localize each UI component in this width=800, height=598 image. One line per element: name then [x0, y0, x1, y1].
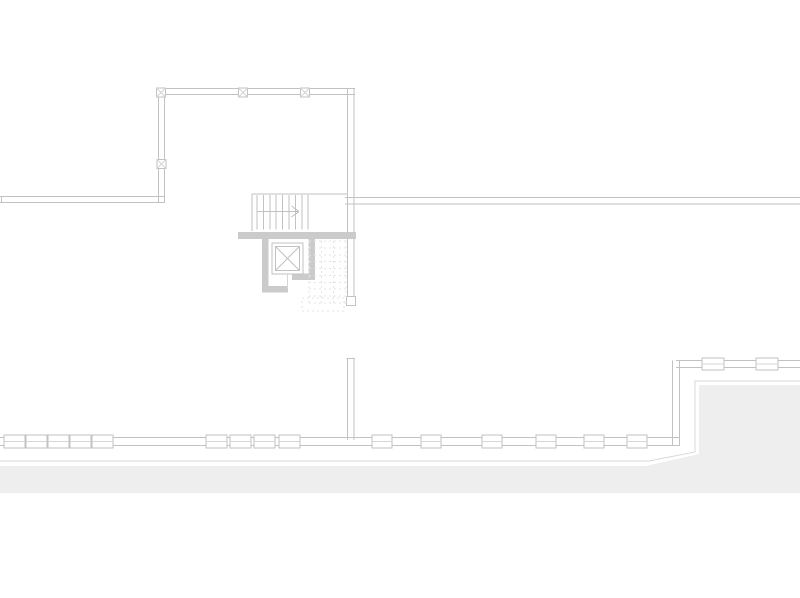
elevator-wall-bottom-left	[262, 286, 288, 293]
elevator-wall-top	[238, 232, 356, 239]
hidden-stair-landing	[302, 298, 344, 311]
elevator-wall-left	[262, 239, 269, 292]
wall-shaft-end-cap	[347, 297, 356, 306]
plan-svg	[0, 0, 800, 598]
floor-plan	[0, 0, 800, 598]
